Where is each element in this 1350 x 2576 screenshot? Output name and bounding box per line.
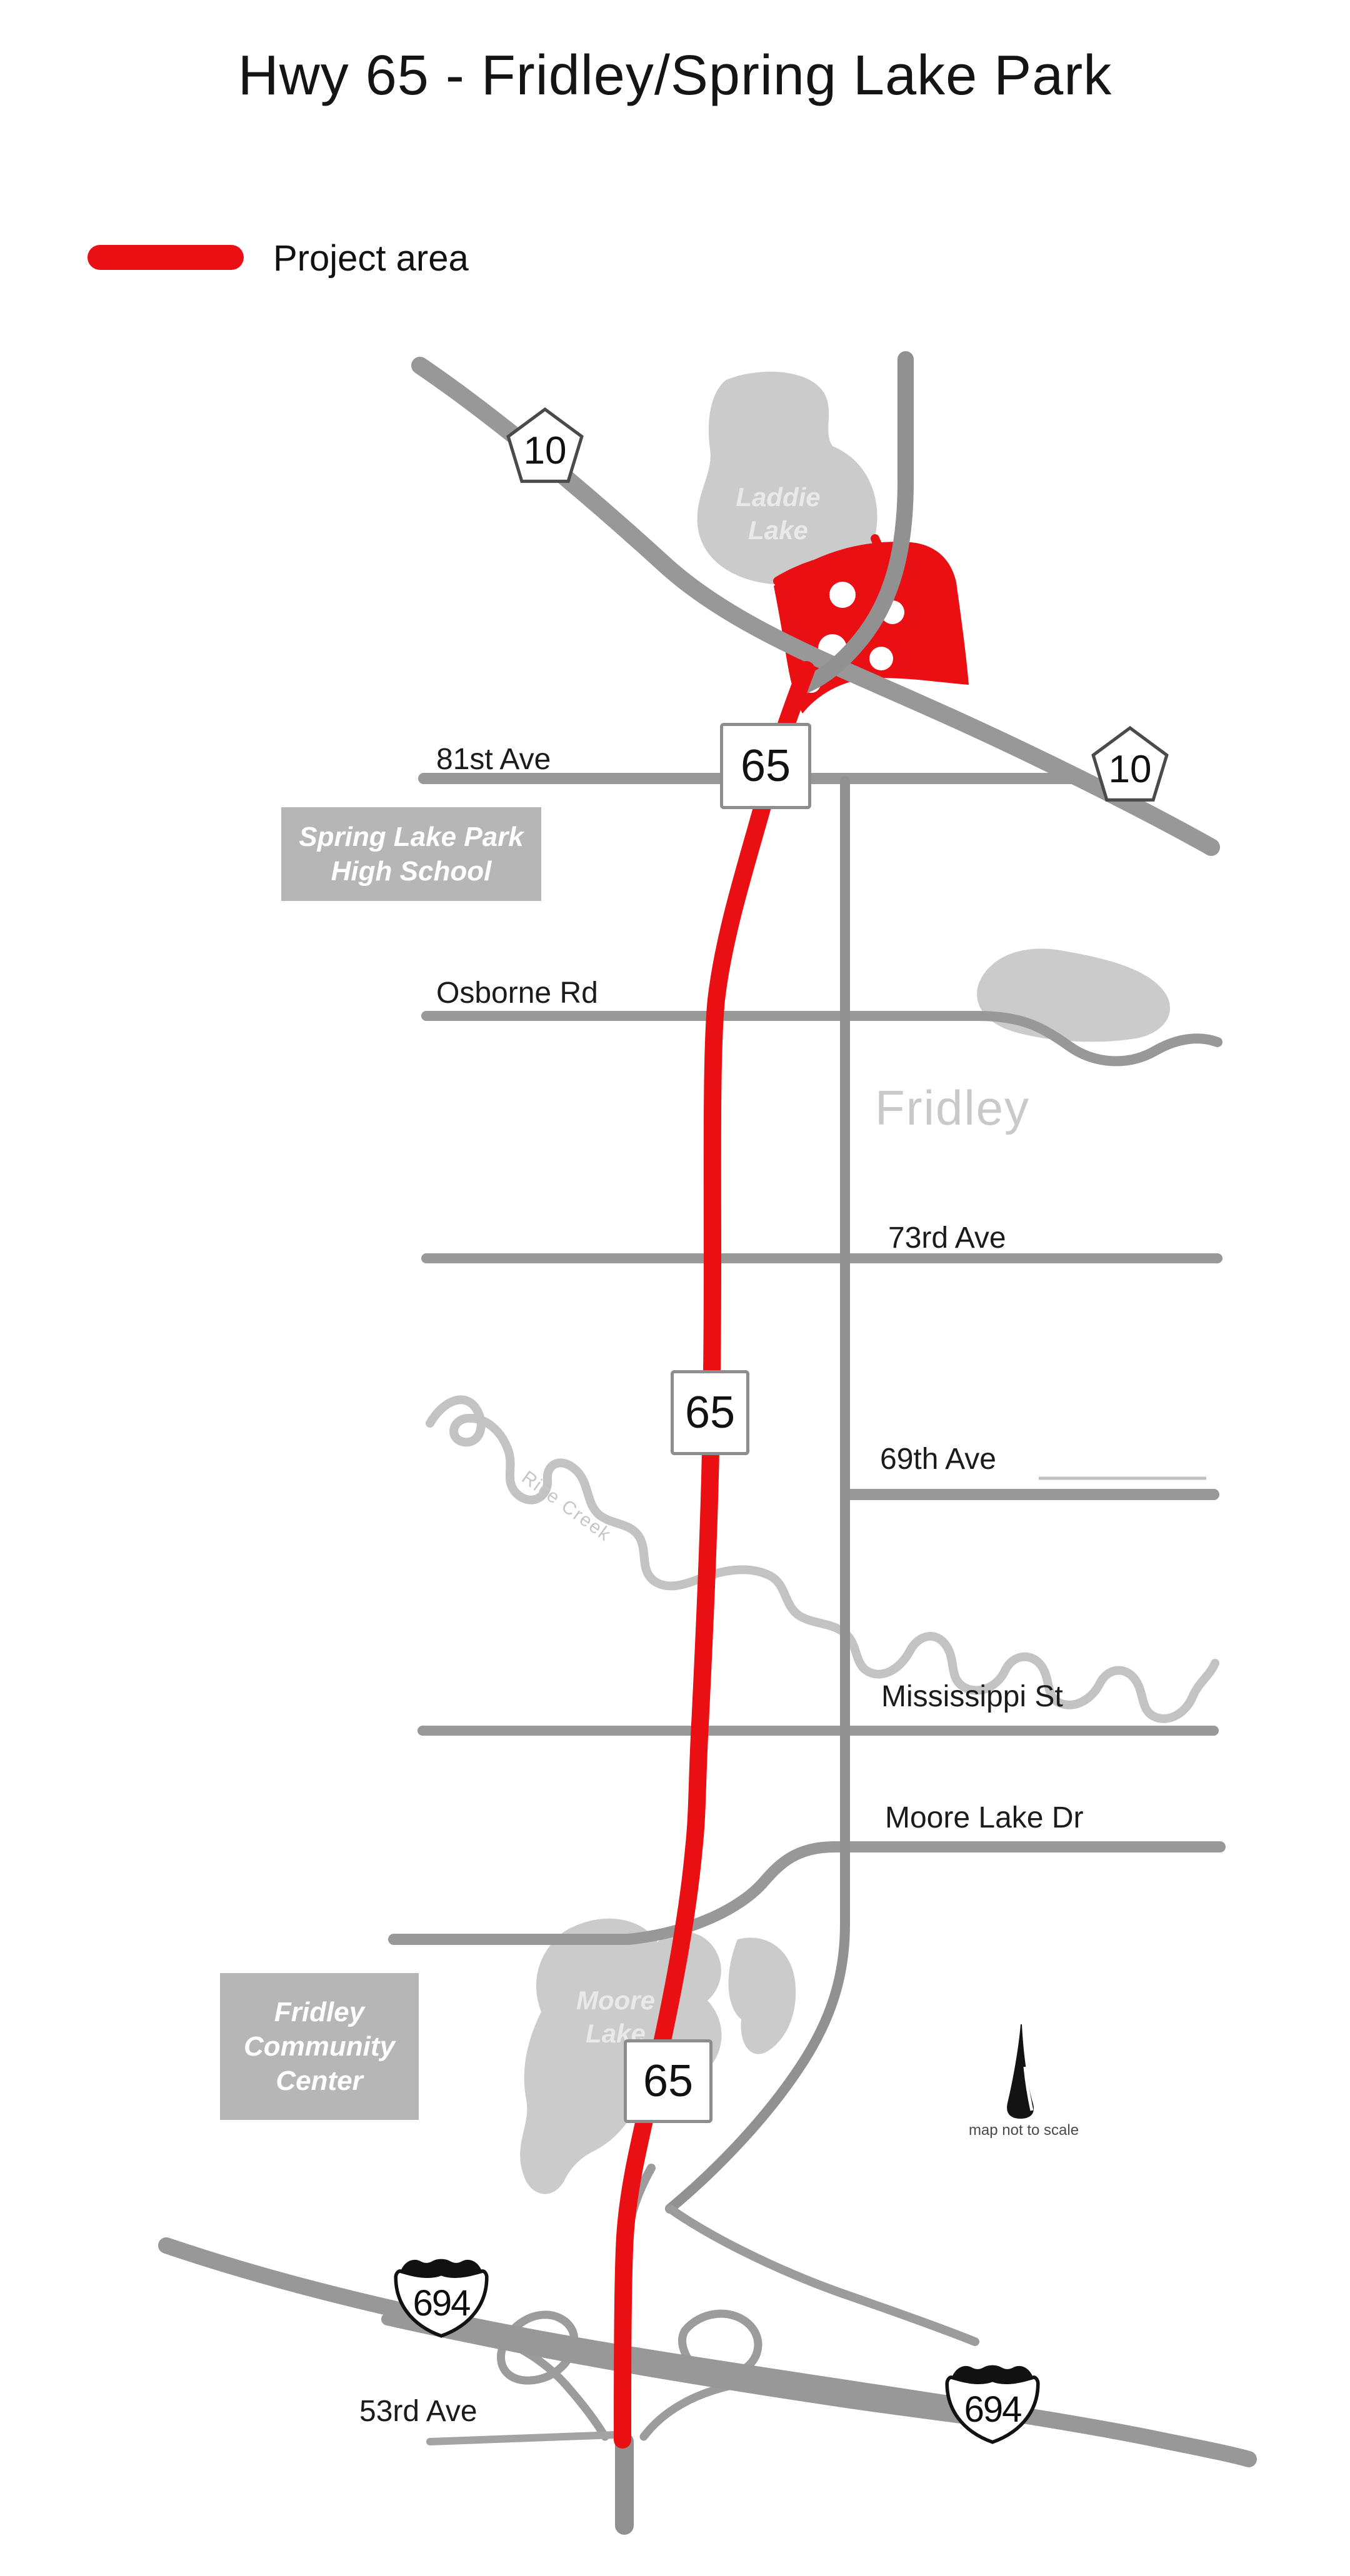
north-arrow-icon bbox=[1000, 2023, 1044, 2120]
hwy-65-shield-mid: 65 bbox=[671, 1370, 749, 1455]
53rd-ave-road bbox=[430, 2435, 616, 2442]
i694-westbound-road bbox=[166, 2245, 1249, 2459]
i-694-shield-west: 694 bbox=[389, 2248, 494, 2342]
page-title: Hwy 65 - Fridley/Spring Lake Park bbox=[0, 44, 1350, 108]
map-page: Hwy 65 - Fridley/Spring Lake Park Projec… bbox=[0, 0, 1350, 2576]
legend-project-area-label: Project area bbox=[273, 237, 469, 279]
hwy-10-shield-west-number: 10 bbox=[524, 429, 567, 473]
street-label-53rd-ave: 53rd Ave bbox=[359, 2394, 477, 2429]
moore-lake-dr-road bbox=[394, 1847, 1220, 1939]
street-label-73rd-ave: 73rd Ave bbox=[888, 1221, 1006, 1255]
street-label-osborne-rd: Osborne Rd bbox=[436, 976, 598, 1010]
hwy-10-shield-east: 10 bbox=[1090, 724, 1170, 806]
i-694-shield-east-number: 694 bbox=[964, 2389, 1021, 2430]
hwy-65-shield-south: 65 bbox=[624, 2039, 712, 2123]
scale-note: map not to scale bbox=[936, 2122, 1111, 2139]
hwy-65-shield-mid-number: 65 bbox=[685, 1387, 735, 1438]
moore-lake-water-east-lobe bbox=[729, 1937, 796, 2054]
i-694-shield-east: 694 bbox=[940, 2354, 1045, 2448]
street-label-mississippi-st: Mississippi St bbox=[881, 1679, 1063, 1714]
hwy-65-shield-south-number: 65 bbox=[643, 2056, 693, 2107]
i694-ramp-southeast bbox=[644, 2384, 737, 2437]
i-694-shield-west-number: 694 bbox=[413, 2282, 470, 2324]
fridley-community-center-box: Fridley Community Center bbox=[220, 1973, 419, 2120]
legend-project-area-swatch bbox=[87, 245, 244, 270]
street-label-moore-lake-dr: Moore Lake Dr bbox=[885, 1801, 1083, 1835]
fridley-city-label: Fridley bbox=[875, 1080, 1030, 1136]
hwy-10-shield-east-number: 10 bbox=[1109, 747, 1152, 792]
hwy-65-shield-north-number: 65 bbox=[741, 740, 791, 792]
osborne-lake-water bbox=[977, 948, 1170, 1042]
laddie-lake-label: Laddie Lake bbox=[706, 481, 850, 547]
street-label-69th-ave: 69th Ave bbox=[880, 1442, 996, 1476]
street-label-81st-ave: 81st Ave bbox=[436, 742, 551, 777]
hwy-10-shield-west: 10 bbox=[505, 404, 585, 489]
rice-creek bbox=[430, 1400, 1215, 1718]
spring-lake-park-high-school-box: Spring Lake Park High School bbox=[281, 807, 541, 901]
map-canvas bbox=[0, 0, 1350, 2576]
hwy-65-shield-north: 65 bbox=[720, 723, 811, 809]
i694-ramp-northeast bbox=[670, 2209, 975, 2342]
